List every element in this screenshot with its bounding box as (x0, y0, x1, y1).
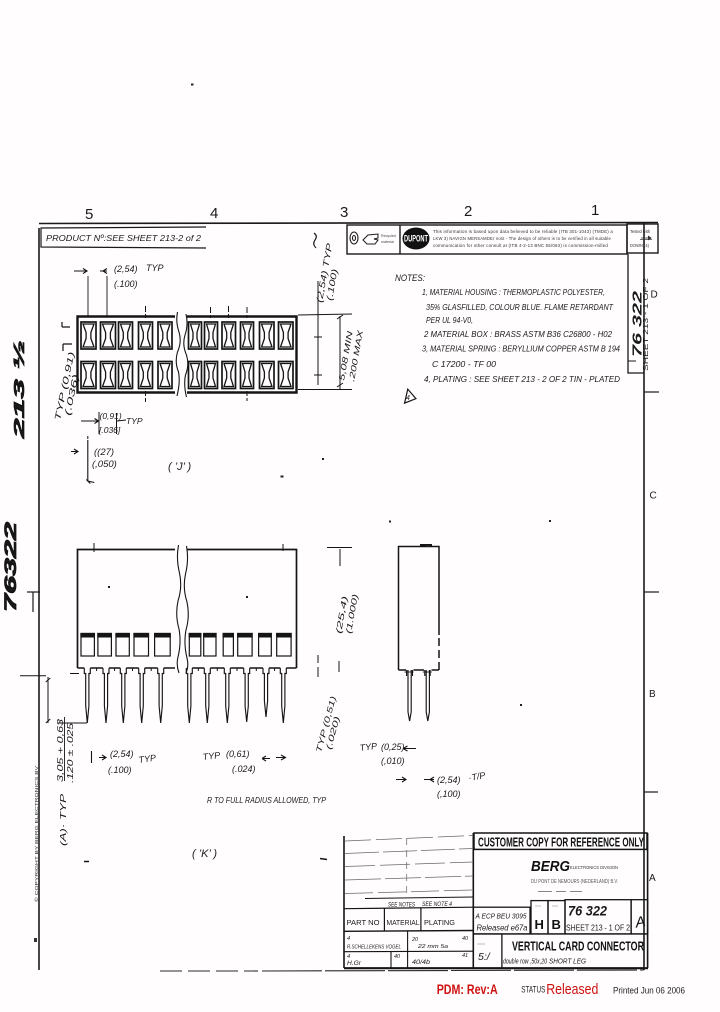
svg-text:PART NO: PART NO (347, 918, 380, 927)
svg-text:Tested with: Tested with (630, 229, 651, 234)
svg-text:PRODUCT Nº:SEE SHEET 213-2 of: PRODUCT Nº:SEE SHEET 213-2 of 2 (46, 233, 201, 243)
svg-text:35% GLASFILLED, COLOUR BLUE.: 35% GLASFILLED, COLOUR BLUE. FLAME RETAR… (426, 302, 614, 312)
svg-text:STATUS: STATUS (521, 985, 545, 995)
svg-text:Printed Jun 06 2006: Printed Jun 06 2006 (613, 986, 685, 997)
svg-text:[.036]: [.036] (98, 425, 121, 435)
svg-text:4: 4 (347, 954, 350, 960)
svg-text:B: B (649, 689, 656, 700)
svg-text:(0,91): (0,91) (100, 411, 122, 421)
svg-text:CUSTOMER COPY FOR REFERENCE ON: CUSTOMER COPY FOR REFERENCE ONLY (478, 835, 644, 850)
svg-text:4: 4 (347, 936, 350, 942)
svg-text:76 322: 76 322 (568, 904, 607, 919)
svg-text:PLATING: PLATING (424, 918, 455, 927)
svg-text:PER UL 94-V0,: PER UL 94-V0, (426, 315, 473, 325)
svg-text:2 MATERIAL BOX : BRASS ASTM: 2 MATERIAL BOX : BRASS ASTM B36 C26800 -… (423, 329, 612, 339)
svg-text:SHEET 213 - 1 OF 2: SHEET 213 - 1 OF 2 (641, 278, 650, 371)
svg-text:TYP: TYP (202, 750, 220, 762)
svg-text:(2,54): (2,54) (437, 775, 461, 785)
svg-text:VERTICAL CARD CONNECTOR: VERTICAL CARD CONNECTOR (512, 939, 644, 954)
svg-text:A: A (649, 873, 656, 884)
svg-text:.120 ± .025: .120 ± .025 (66, 722, 75, 783)
svg-text:·T/P: ·T/P (468, 770, 486, 783)
svg-text:This information is based upon: This information is based upon data beli… (433, 229, 613, 234)
svg-text:R TO FULL RADIUS ALLOWED, TYP: R TO FULL RADIUS ALLOWED, TYP (207, 796, 327, 805)
svg-text:(A)· TYP: (A)· TYP (59, 793, 68, 846)
svg-text:(0,61): (0,61) (226, 749, 250, 759)
svg-text:Released: Released (546, 982, 598, 998)
svg-text:3, MATERIAL SPRING : BERYLLI: 3, MATERIAL SPRING : BERYLLIUM COPPER AS… (422, 344, 620, 354)
svg-text:3: 3 (340, 204, 348, 221)
svg-text:1: 1 (591, 202, 599, 219)
svg-text:(,050): (,050) (92, 459, 117, 470)
svg-text:40: 40 (462, 936, 469, 942)
svg-text:BERG: BERG (531, 859, 570, 875)
svg-text:5:/: 5:/ (478, 951, 491, 963)
svg-text:((27): ((27) (94, 447, 114, 458)
svg-text:MATERIAL: MATERIAL (387, 918, 420, 927)
svg-text:(0,25): (0,25) (381, 742, 405, 752)
svg-text:(.100): (.100) (108, 765, 132, 775)
svg-text:41: 41 (462, 953, 468, 959)
svg-text:4: 4 (406, 395, 410, 402)
svg-text:H: H (535, 917, 544, 932)
svg-text:(2,54): (2,54) (110, 749, 134, 759)
svg-text:A ECP BEU 3095: A ECP BEU 3095 (475, 912, 528, 921)
svg-text:DUPONT: DUPONT (404, 234, 428, 244)
svg-text:76322: 76322 (1, 521, 20, 612)
svg-text:ELECTRONICS DIVISION: ELECTRONICS DIVISION (570, 865, 618, 870)
svg-text:40/4b: 40/4b (412, 960, 431, 966)
svg-text:TYP: TYP (138, 753, 157, 765)
svg-text:( ’K’ ): ( ’K’ ) (192, 848, 217, 860)
svg-text:(.100): (.100) (114, 279, 138, 289)
svg-text:SHORT LEG: SHORT LEG (549, 959, 587, 966)
svg-text:Recycled: Recycled (381, 234, 396, 238)
svg-text:double row ,50x,20: double row ,50x,20 (503, 959, 547, 966)
svg-text:2: 2 (464, 203, 472, 220)
svg-text:NOTES:: NOTES: (395, 273, 425, 284)
svg-text:D: D (651, 290, 658, 301)
svg-text:DOWN (4): DOWN (4) (630, 243, 650, 248)
svg-text:DU PONT DE NEMOURS (NEDERLAND): DU PONT DE NEMOURS (NEDERLAND) B.V. (531, 879, 618, 885)
svg-text:4, PLATING : SEE SHEET 213 -: 4, PLATING : SEE SHEET 213 - 2 OF 2 TIN … (424, 374, 620, 384)
svg-text:20: 20 (411, 937, 419, 943)
svg-text:213 ½: 213 ½ (11, 340, 28, 440)
svg-text:communication for other consul: communication for other consult at (ITB … (433, 243, 608, 248)
svg-text:Released e67a: Released e67a (477, 924, 529, 933)
svg-text:H.Gr: H.Gr (347, 961, 362, 967)
svg-text:LKW 3) NAVIGN MERSAMDEr nost -: LKW 3) NAVIGN MERSAMDEr nost - The desig… (433, 236, 611, 241)
svg-text:TYP: TYP (359, 741, 378, 753)
svg-text:3,05 + 0,63: 3,05 + 0,63 (56, 718, 65, 782)
svg-text:4: 4 (210, 205, 218, 222)
svg-text:C: C (650, 491, 657, 502)
svg-text:40: 40 (394, 954, 401, 960)
svg-text:1, MATERIAL HOUSING : THERMOPL: 1, MATERIAL HOUSING : THERMOPLASTIC POLY… (422, 287, 605, 297)
svg-text:(.024): (.024) (232, 764, 256, 774)
svg-text:TYP: TYP (146, 263, 164, 273)
svg-text:material: material (381, 240, 394, 244)
svg-text:( ’J’ ): ( ’J’ ) (168, 461, 192, 473)
svg-text:TYP: TYP (126, 416, 143, 426)
svg-text:PDM: Rev:A: PDM: Rev:A (437, 982, 498, 997)
svg-text:(,010): (,010) (381, 756, 405, 766)
svg-text:B: B (552, 917, 561, 932)
svg-text:C 17200 - TF 00: C 17200 - TF 00 (432, 359, 496, 369)
svg-text:(2,54): (2,54) (114, 264, 138, 274)
svg-text:5: 5 (85, 206, 93, 223)
svg-text:22 mm 5a: 22 mm 5a (417, 944, 449, 950)
svg-text:R.SCHELLEKENS VOGEL: R.SCHELLEKENS VOGEL (347, 945, 401, 951)
svg-text:© COPYRIGHT BY BERG ELECTRONIC: © COPYRIGHT BY BERG ELECTRONICS BV (33, 765, 39, 902)
svg-text:SHEET 213 - 1 OF 2: SHEET 213 - 1 OF 2 (566, 924, 630, 933)
svg-text:(,100): (,100) (437, 789, 461, 799)
